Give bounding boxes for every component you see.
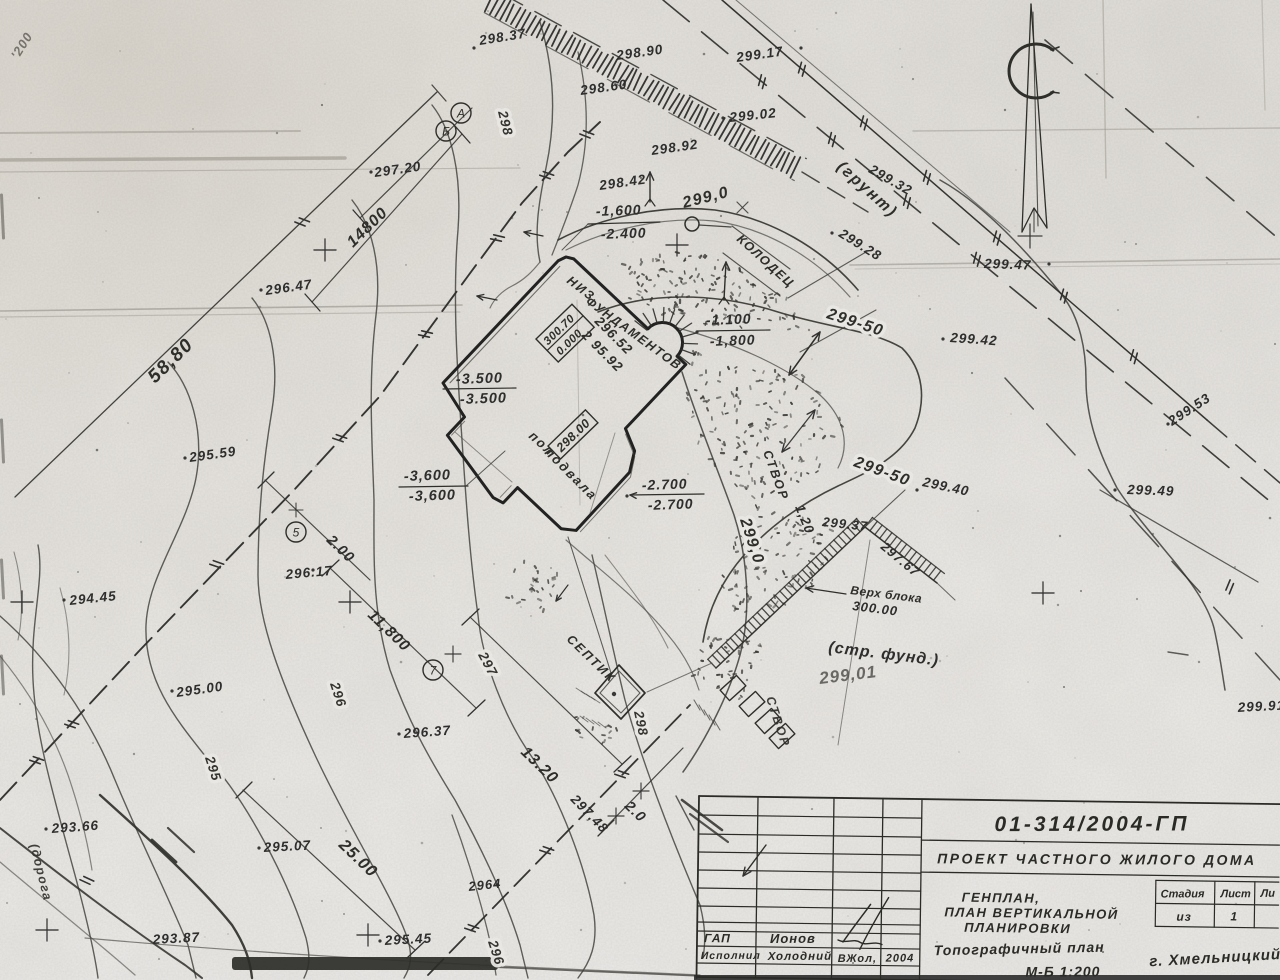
svg-text:-3,600: -3,600 [404,467,452,485]
svg-text:ВЖол,: ВЖол, [838,953,877,965]
svg-text:-2.700: -2.700 [642,475,688,493]
svg-text:Исполнил: Исполнил [701,950,761,962]
svg-text:-1,800: -1,800 [710,331,756,349]
svg-text:1: 1 [1230,909,1238,923]
svg-text:299.49: 299.49 [1126,482,1175,499]
svg-text:295.07: 295.07 [262,838,312,856]
svg-text:299.47: 299.47 [983,256,1032,273]
svg-text:Б: Б [442,125,450,139]
svg-text:из: из [1176,910,1192,924]
svg-text:ГАП: ГАП [704,931,731,945]
svg-text:Ли: Ли [1260,888,1276,900]
svg-text:Лист: Лист [1220,888,1251,900]
svg-text:2004: 2004 [885,953,915,965]
svg-text:Стадия: Стадия [1161,888,1205,900]
svg-text:-2.700: -2.700 [648,495,694,513]
svg-text:-3.500: -3.500 [460,390,508,408]
svg-text:-3.500: -3.500 [456,370,504,388]
svg-text:-3,600: -3,600 [409,487,457,505]
svg-text:ПРОЕКТ ЧАСТНОГО ЖИЛОГО ДОМА: ПРОЕКТ ЧАСТНОГО ЖИЛОГО ДОМА [937,850,1257,868]
svg-text:01-314/2004-ГП: 01-314/2004-ГП [994,812,1189,836]
svg-text:ГЕНПЛАН,: ГЕНПЛАН, [962,890,1041,906]
svg-text:Ионов: Ионов [770,931,816,946]
svg-text:5: 5 [293,526,300,540]
svg-text:-1.100: -1.100 [706,310,752,328]
svg-text:Холодний: Холодний [767,951,832,963]
svg-text:295.45: 295.45 [383,931,432,949]
svg-text:-1,600: -1,600 [596,201,642,219]
svg-text:ПЛАНИРОВКИ: ПЛАНИРОВКИ [964,920,1071,936]
svg-text:299.91: 299.91 [1236,698,1280,716]
svg-text:М-Б 1:200: М-Б 1:200 [1025,963,1100,979]
svg-text:293.87: 293.87 [151,930,201,948]
svg-text:А: А [456,107,465,121]
svg-text:-2.400: -2.400 [601,224,647,242]
